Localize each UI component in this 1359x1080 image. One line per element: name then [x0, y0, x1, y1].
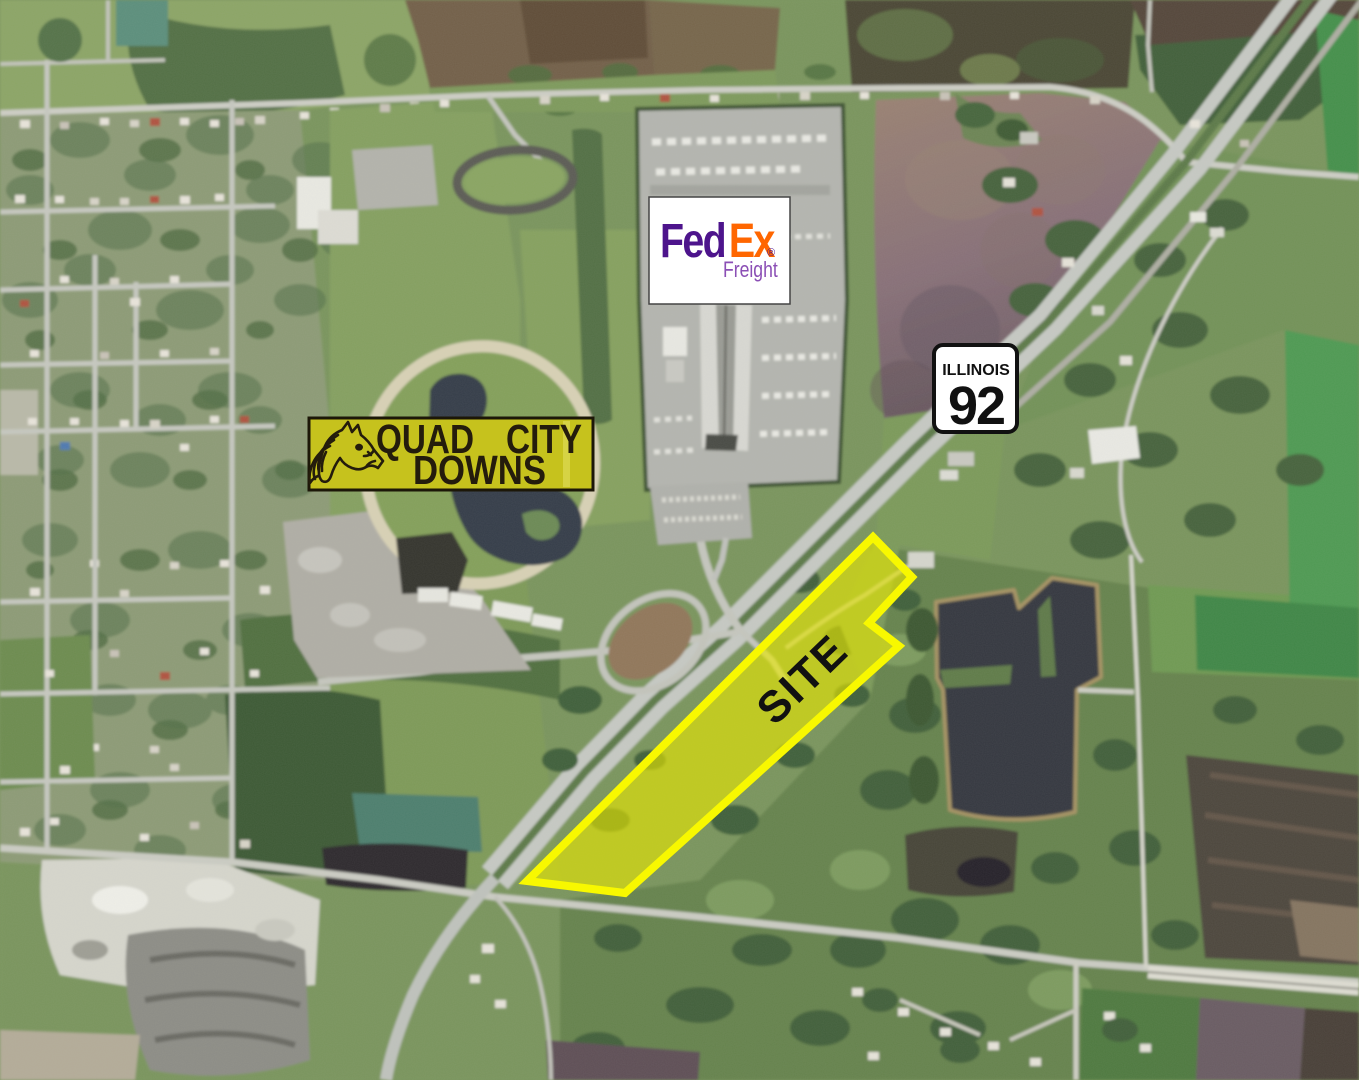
svg-text:92: 92: [948, 376, 1004, 436]
svg-text:Freight: Freight: [723, 258, 778, 282]
svg-text:DOWNS: DOWNS: [413, 447, 546, 493]
svg-text:Fed: Fed: [660, 214, 725, 268]
svg-text:®: ®: [767, 247, 775, 259]
